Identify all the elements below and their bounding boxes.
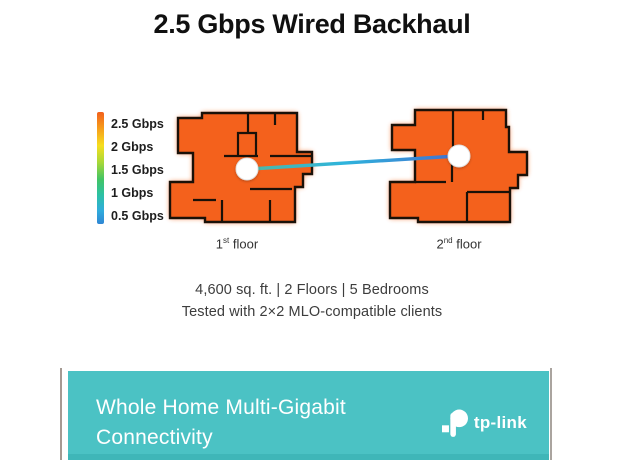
left-edge-rule [60,368,62,460]
first-floor-label: 1st floor [177,236,297,251]
tp-link-logo-icon [442,408,468,438]
banner-headline: Whole Home Multi-Gigabit Connectivity [96,393,346,453]
right-edge-rule [550,368,552,460]
mesh-node-second-floor [448,145,470,167]
mesh-node-first-floor [236,158,258,180]
specs-line-home: 4,600 sq. ft. | 2 Floors | 5 Bedrooms [0,282,624,298]
tp-link-logo: tp-link [442,407,527,438]
bottom-banner: Whole Home Multi-Gigabit Connectivity tp… [68,371,549,460]
tp-link-logo-text: tp-link [474,413,527,433]
banner-bottom-strip [68,454,549,460]
specs-line-clients: Tested with 2×2 MLO-compatible clients [0,304,624,320]
second-floor-label: 2nd floor [399,236,519,251]
banner-headline-line1: Whole Home Multi-Gigabit [96,393,346,423]
banner-headline-line2: Connectivity [96,423,346,453]
